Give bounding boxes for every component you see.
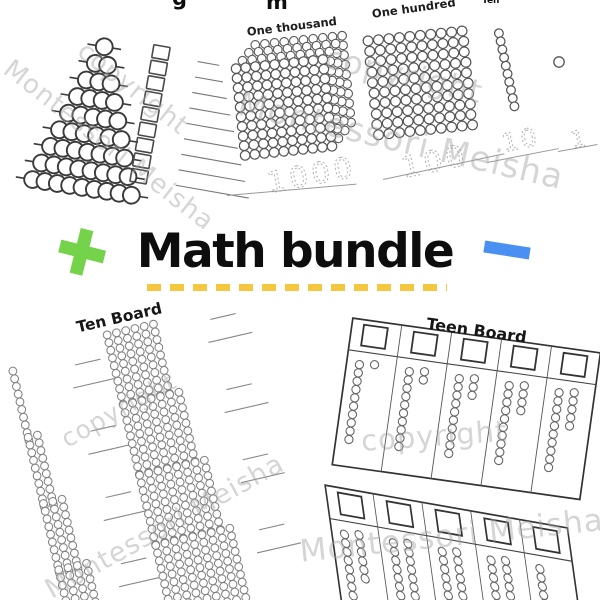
thousand-cube-graphic [226, 26, 373, 167]
cut-text-fragment: m [266, 0, 288, 14]
svg-text:1: 1 [569, 126, 588, 154]
cut-text-fragment: g [172, 0, 187, 10]
title-dashed-underline [147, 284, 447, 291]
trace-number-10: 10 [497, 118, 549, 158]
unit-bead-graphic [551, 54, 567, 70]
ten-board-graphic [0, 264, 381, 600]
math-bundle-preview: gmTen One thousand 1000 One hundred 100 … [0, 0, 600, 600]
cut-text-fragment: Ten [482, 0, 499, 6]
teen-board-bottom-graphic [324, 484, 594, 600]
hundred-label: One hundred [371, 0, 456, 21]
ten-bar-graphic [488, 27, 526, 119]
trace-number-100: 100 [396, 134, 479, 186]
hundred-square-graphic [362, 25, 478, 141]
svg-text:100: 100 [398, 138, 471, 185]
bundle-title: Math bundle [95, 224, 495, 279]
